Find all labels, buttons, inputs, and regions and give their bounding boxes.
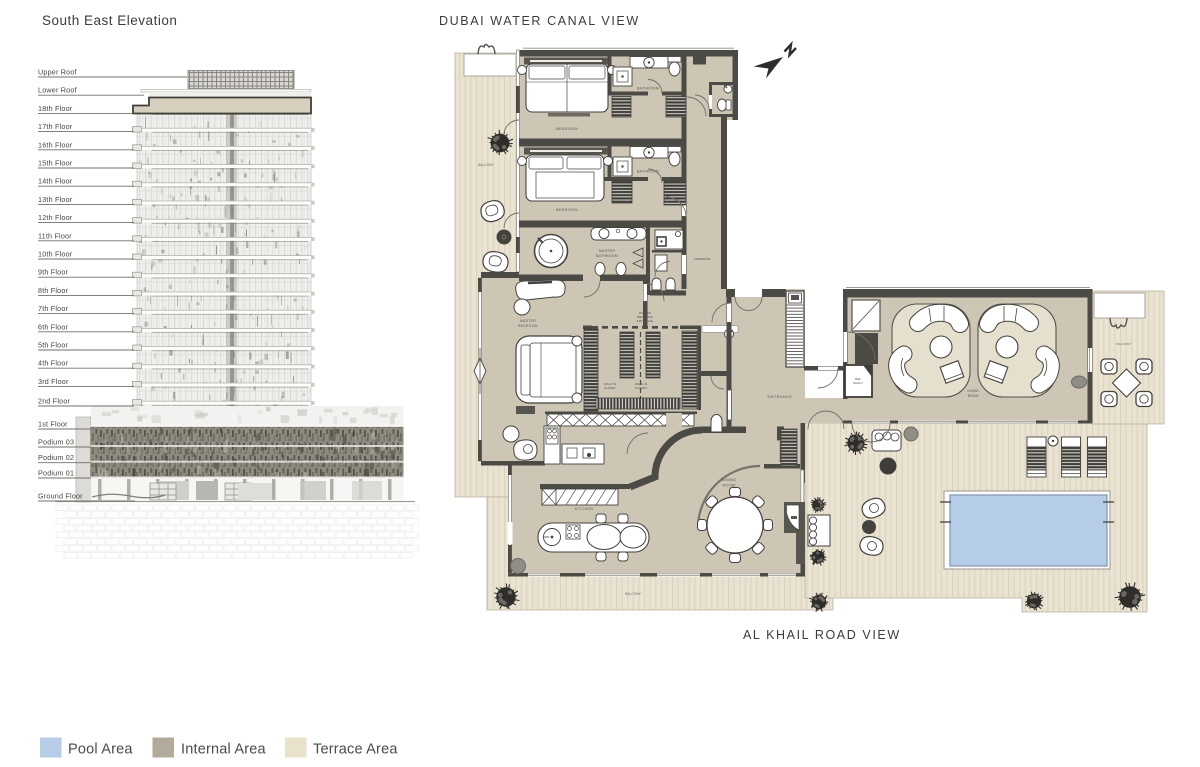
svg-text:16th Floor: 16th Floor <box>38 140 73 149</box>
svg-text:BALCONY: BALCONY <box>478 163 495 167</box>
svg-text:15th Floor: 15th Floor <box>38 159 73 168</box>
svg-text:DINING: DINING <box>721 478 736 482</box>
svg-text:1st Floor: 1st Floor <box>38 420 68 429</box>
svg-text:12th Floor: 12th Floor <box>38 213 73 222</box>
svg-text:Podium 03: Podium 03 <box>38 438 74 447</box>
svg-text:ROOM: ROOM <box>968 394 979 398</box>
svg-text:5th Floor: 5th Floor <box>38 341 69 350</box>
svg-text:BATHROOM: BATHROOM <box>637 87 659 91</box>
svg-text:CLOSET: CLOSET <box>635 386 647 390</box>
svg-text:4th Floor: 4th Floor <box>38 359 69 368</box>
svg-text:BEDROOM: BEDROOM <box>518 324 538 328</box>
svg-text:17th Floor: 17th Floor <box>38 122 73 131</box>
svg-text:Podium 01: Podium 01 <box>38 469 74 478</box>
svg-text:6th Floor: 6th Floor <box>38 322 69 331</box>
svg-text:MASTER: MASTER <box>599 249 615 253</box>
svg-text:2nd Floor: 2nd Floor <box>38 397 71 406</box>
svg-text:Pool Area: Pool Area <box>68 742 133 758</box>
svg-text:LIVING: LIVING <box>967 389 978 393</box>
svg-text:18th Floor: 18th Floor <box>38 104 73 113</box>
svg-text:9th Floor: 9th Floor <box>38 268 69 277</box>
svg-text:3rd Floor: 3rd Floor <box>38 377 69 386</box>
svg-text:Internal Area: Internal Area <box>181 742 267 758</box>
svg-text:Terrace Area: Terrace Area <box>313 742 398 758</box>
svg-text:SHAFT: SHAFT <box>853 381 863 385</box>
svg-text:Podium 02: Podium 02 <box>38 453 74 462</box>
svg-text:ENTRANCE: ENTRANCE <box>768 395 793 399</box>
svg-text:BATHROOM: BATHROOM <box>596 254 618 258</box>
svg-text:7th Floor: 7th Floor <box>38 304 69 313</box>
svg-text:BALCONY: BALCONY <box>1117 342 1132 346</box>
svg-text:ROOM: ROOM <box>722 484 735 488</box>
svg-text:13th Floor: 13th Floor <box>38 195 73 204</box>
svg-text:BALCONY: BALCONY <box>625 592 642 596</box>
svg-text:KITCHEN: KITCHEN <box>575 507 594 511</box>
svg-text:MASTER: MASTER <box>520 319 536 323</box>
svg-text:AL KHAIL ROAD VIEW: AL KHAIL ROAD VIEW <box>743 628 901 642</box>
svg-text:Ground Floor: Ground Floor <box>38 492 83 501</box>
svg-text:ENTRANCE: ENTRANCE <box>637 319 654 323</box>
svg-text:BEDROOM: BEDROOM <box>556 208 578 212</box>
svg-text:DUBAI WATER CANAL VIEW: DUBAI WATER CANAL VIEW <box>439 14 640 28</box>
svg-text:10th Floor: 10th Floor <box>38 250 73 259</box>
svg-text:CLOSET: CLOSET <box>604 386 616 390</box>
svg-text:Upper Roof: Upper Roof <box>38 68 77 77</box>
svg-text:8th Floor: 8th Floor <box>38 286 69 295</box>
svg-text:Lower Roof: Lower Roof <box>38 86 77 95</box>
svg-text:South East Elevation: South East Elevation <box>42 13 177 28</box>
svg-text:CORRIDOR: CORRIDOR <box>694 257 711 261</box>
svg-text:11th Floor: 11th Floor <box>38 231 72 240</box>
svg-text:14th Floor: 14th Floor <box>38 177 73 186</box>
svg-text:BEDROOM: BEDROOM <box>556 127 578 131</box>
